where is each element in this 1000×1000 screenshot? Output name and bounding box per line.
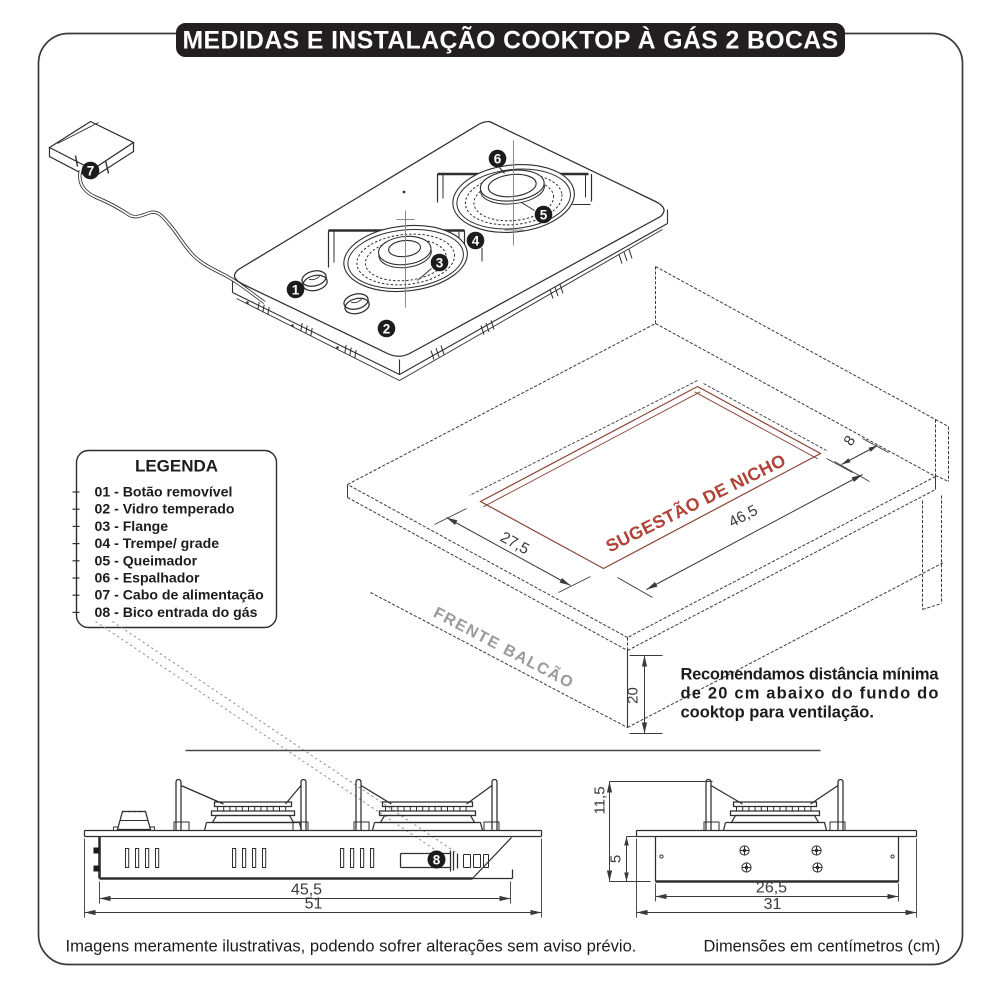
svg-text:3: 3 — [436, 255, 444, 270]
svg-text:05 - Queimador: 05 - Queimador — [95, 552, 198, 568]
svg-text:cooktop para ventilação.: cooktop para ventilação. — [681, 704, 874, 722]
svg-text:MEDIDAS E INSTALAÇÃO COOKTOP À: MEDIDAS E INSTALAÇÃO COOKTOP À GÁS 2 BOC… — [182, 27, 838, 55]
svg-text:4: 4 — [472, 233, 480, 248]
svg-text:07 - Cabo de alimentação: 07 - Cabo de alimentação — [95, 587, 265, 603]
svg-text:20: 20 — [625, 687, 642, 704]
svg-text:6: 6 — [494, 151, 502, 166]
svg-text:26,5: 26,5 — [756, 880, 787, 897]
svg-text:31: 31 — [764, 896, 782, 913]
svg-text:de 20 cm abaixo do fundo do: de 20 cm abaixo do fundo do — [681, 685, 939, 703]
svg-text:51: 51 — [305, 896, 323, 913]
svg-text:Imagens meramente ilustrativas: Imagens meramente ilustrativas, podendo … — [66, 937, 637, 956]
svg-text:5: 5 — [608, 855, 625, 863]
svg-text:03 - Flange: 03 - Flange — [95, 518, 169, 534]
svg-text:LEGENDA: LEGENDA — [135, 457, 218, 476]
svg-text:02 - Vidro temperado: 02 - Vidro temperado — [95, 501, 235, 517]
svg-text:7: 7 — [87, 163, 95, 178]
svg-text:04 - Trempe/ grade: 04 - Trempe/ grade — [95, 535, 220, 551]
svg-text:11,5: 11,5 — [592, 786, 609, 814]
svg-text:08 - Bico entrada do gás: 08 - Bico entrada do gás — [95, 604, 258, 620]
svg-text:1: 1 — [292, 282, 300, 297]
svg-text:Recomendamos distância mínima: Recomendamos distância mínima — [681, 666, 940, 684]
svg-text:8: 8 — [433, 852, 441, 867]
svg-text:Dimensões em centímetros (cm): Dimensões em centímetros (cm) — [704, 938, 941, 956]
svg-text:06 - Espalhador: 06 - Espalhador — [95, 570, 200, 586]
svg-text:5: 5 — [540, 207, 548, 222]
svg-text:01 - Botão removível: 01 - Botão removível — [95, 484, 233, 500]
svg-text:2: 2 — [383, 321, 391, 336]
